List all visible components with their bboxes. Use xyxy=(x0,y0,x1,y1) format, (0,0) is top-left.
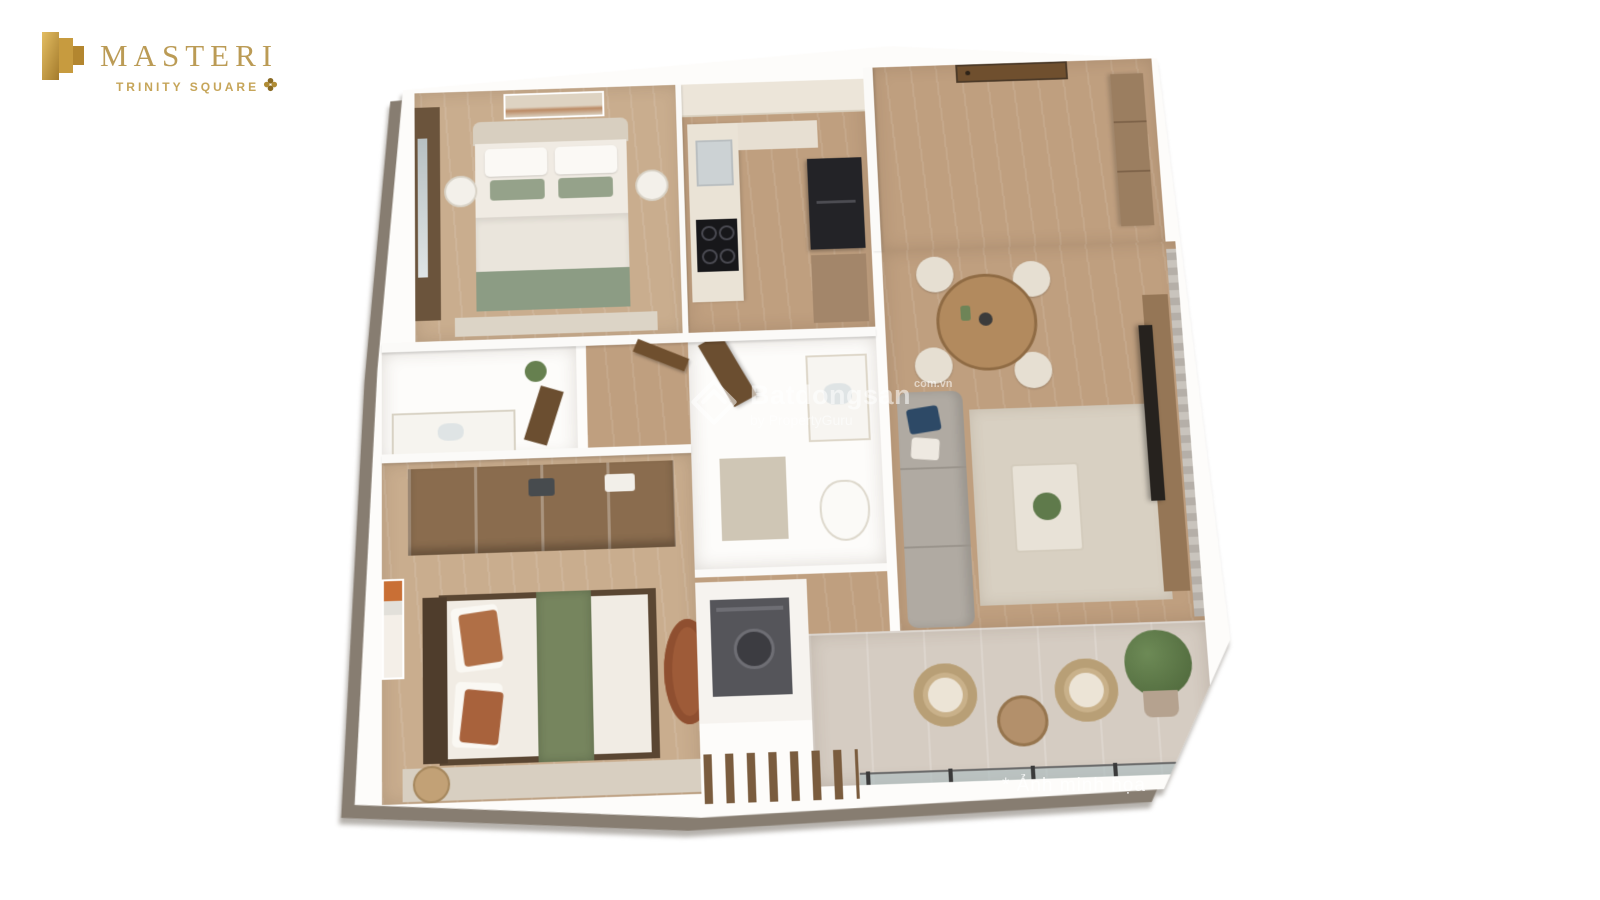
door-handle xyxy=(965,71,970,76)
window-curtain xyxy=(418,138,428,277)
folded-clothes xyxy=(528,478,554,496)
apartment-outline xyxy=(336,32,1247,835)
toilet xyxy=(819,479,872,542)
four-leaf-clover-icon xyxy=(263,77,278,97)
bathroom-door xyxy=(524,386,564,446)
batdongsan-watermark: Batdongsan com.vn by PropertyGuru xyxy=(688,376,953,433)
bath-plant xyxy=(525,360,547,382)
kitchen-sink xyxy=(695,139,733,186)
master-bathroom xyxy=(382,346,578,463)
table-plant xyxy=(1032,492,1062,520)
table-vase xyxy=(960,305,971,320)
master-bedroom xyxy=(414,85,687,342)
master-wardrobe xyxy=(415,107,441,321)
floor-plan-3d xyxy=(336,32,1269,858)
oval-pouf xyxy=(663,618,702,725)
induction-cooktop xyxy=(696,219,739,273)
coffee-table xyxy=(1010,462,1084,553)
dining-chair xyxy=(915,256,954,293)
tall-cabinet xyxy=(811,253,869,323)
bedroom2-wall-art xyxy=(382,579,405,680)
master-rug xyxy=(455,311,658,337)
rattan-chair xyxy=(912,662,979,727)
balcony-table xyxy=(996,694,1050,747)
pillow-terracotta xyxy=(458,609,503,667)
sage-throw xyxy=(476,267,630,312)
washer-door xyxy=(733,628,775,670)
pillow-sage xyxy=(490,179,545,201)
kitchen xyxy=(680,79,875,333)
nightstand xyxy=(635,169,669,201)
pendant-lamp xyxy=(978,312,993,326)
rattan-chair xyxy=(1053,658,1121,723)
watermark-domain: com.vn xyxy=(914,379,953,391)
upper-cabinets xyxy=(680,79,865,118)
bath-mat xyxy=(719,457,788,542)
refrigerator xyxy=(807,157,866,249)
louvered-wood-screen xyxy=(703,749,860,804)
open-wardrobe-shelves xyxy=(408,460,676,555)
utility-niche xyxy=(695,579,812,724)
shoe-wardrobe xyxy=(1110,73,1154,226)
master-wall-art xyxy=(503,91,604,120)
counter-deco xyxy=(737,120,818,150)
living-dining-room xyxy=(881,241,1204,630)
pillow-white xyxy=(555,145,618,175)
plant-pot xyxy=(1143,690,1180,718)
watermark-byline: by PropertyGuru xyxy=(750,413,953,428)
watermark-brand: Batdongsan xyxy=(750,381,911,409)
entry-hall xyxy=(872,58,1165,251)
pillow-sage xyxy=(558,176,613,198)
second-bedroom xyxy=(382,453,702,805)
pillow-white xyxy=(485,147,548,177)
batdongsan-double-chevron-icon xyxy=(688,376,740,433)
screenshot-root: { "page": {"background_color": "#ffffff"… xyxy=(0,0,1600,900)
white-pillow xyxy=(911,437,940,460)
folded-clothes xyxy=(605,473,636,492)
central-bathroom xyxy=(688,336,887,570)
nightstand xyxy=(444,175,477,207)
illustration-note: * Ảnh minh họa xyxy=(1002,775,1146,797)
washing-machine xyxy=(710,597,793,696)
logo-title: MASTERI xyxy=(100,40,278,71)
bathroom-vanity xyxy=(392,409,516,456)
logo-subtitle: TRINITY SQUARE xyxy=(116,80,259,94)
masteri-building-icon xyxy=(36,26,90,91)
pillow-terracotta xyxy=(459,689,504,745)
balcony xyxy=(809,620,1217,787)
potted-plant xyxy=(1122,629,1194,698)
entry-door xyxy=(955,61,1068,83)
bed-headboard xyxy=(422,597,447,764)
sink-bowl xyxy=(438,423,464,441)
green-runner xyxy=(536,590,594,762)
masteri-logo: MASTERI TRINITY SQUARE xyxy=(36,26,278,97)
